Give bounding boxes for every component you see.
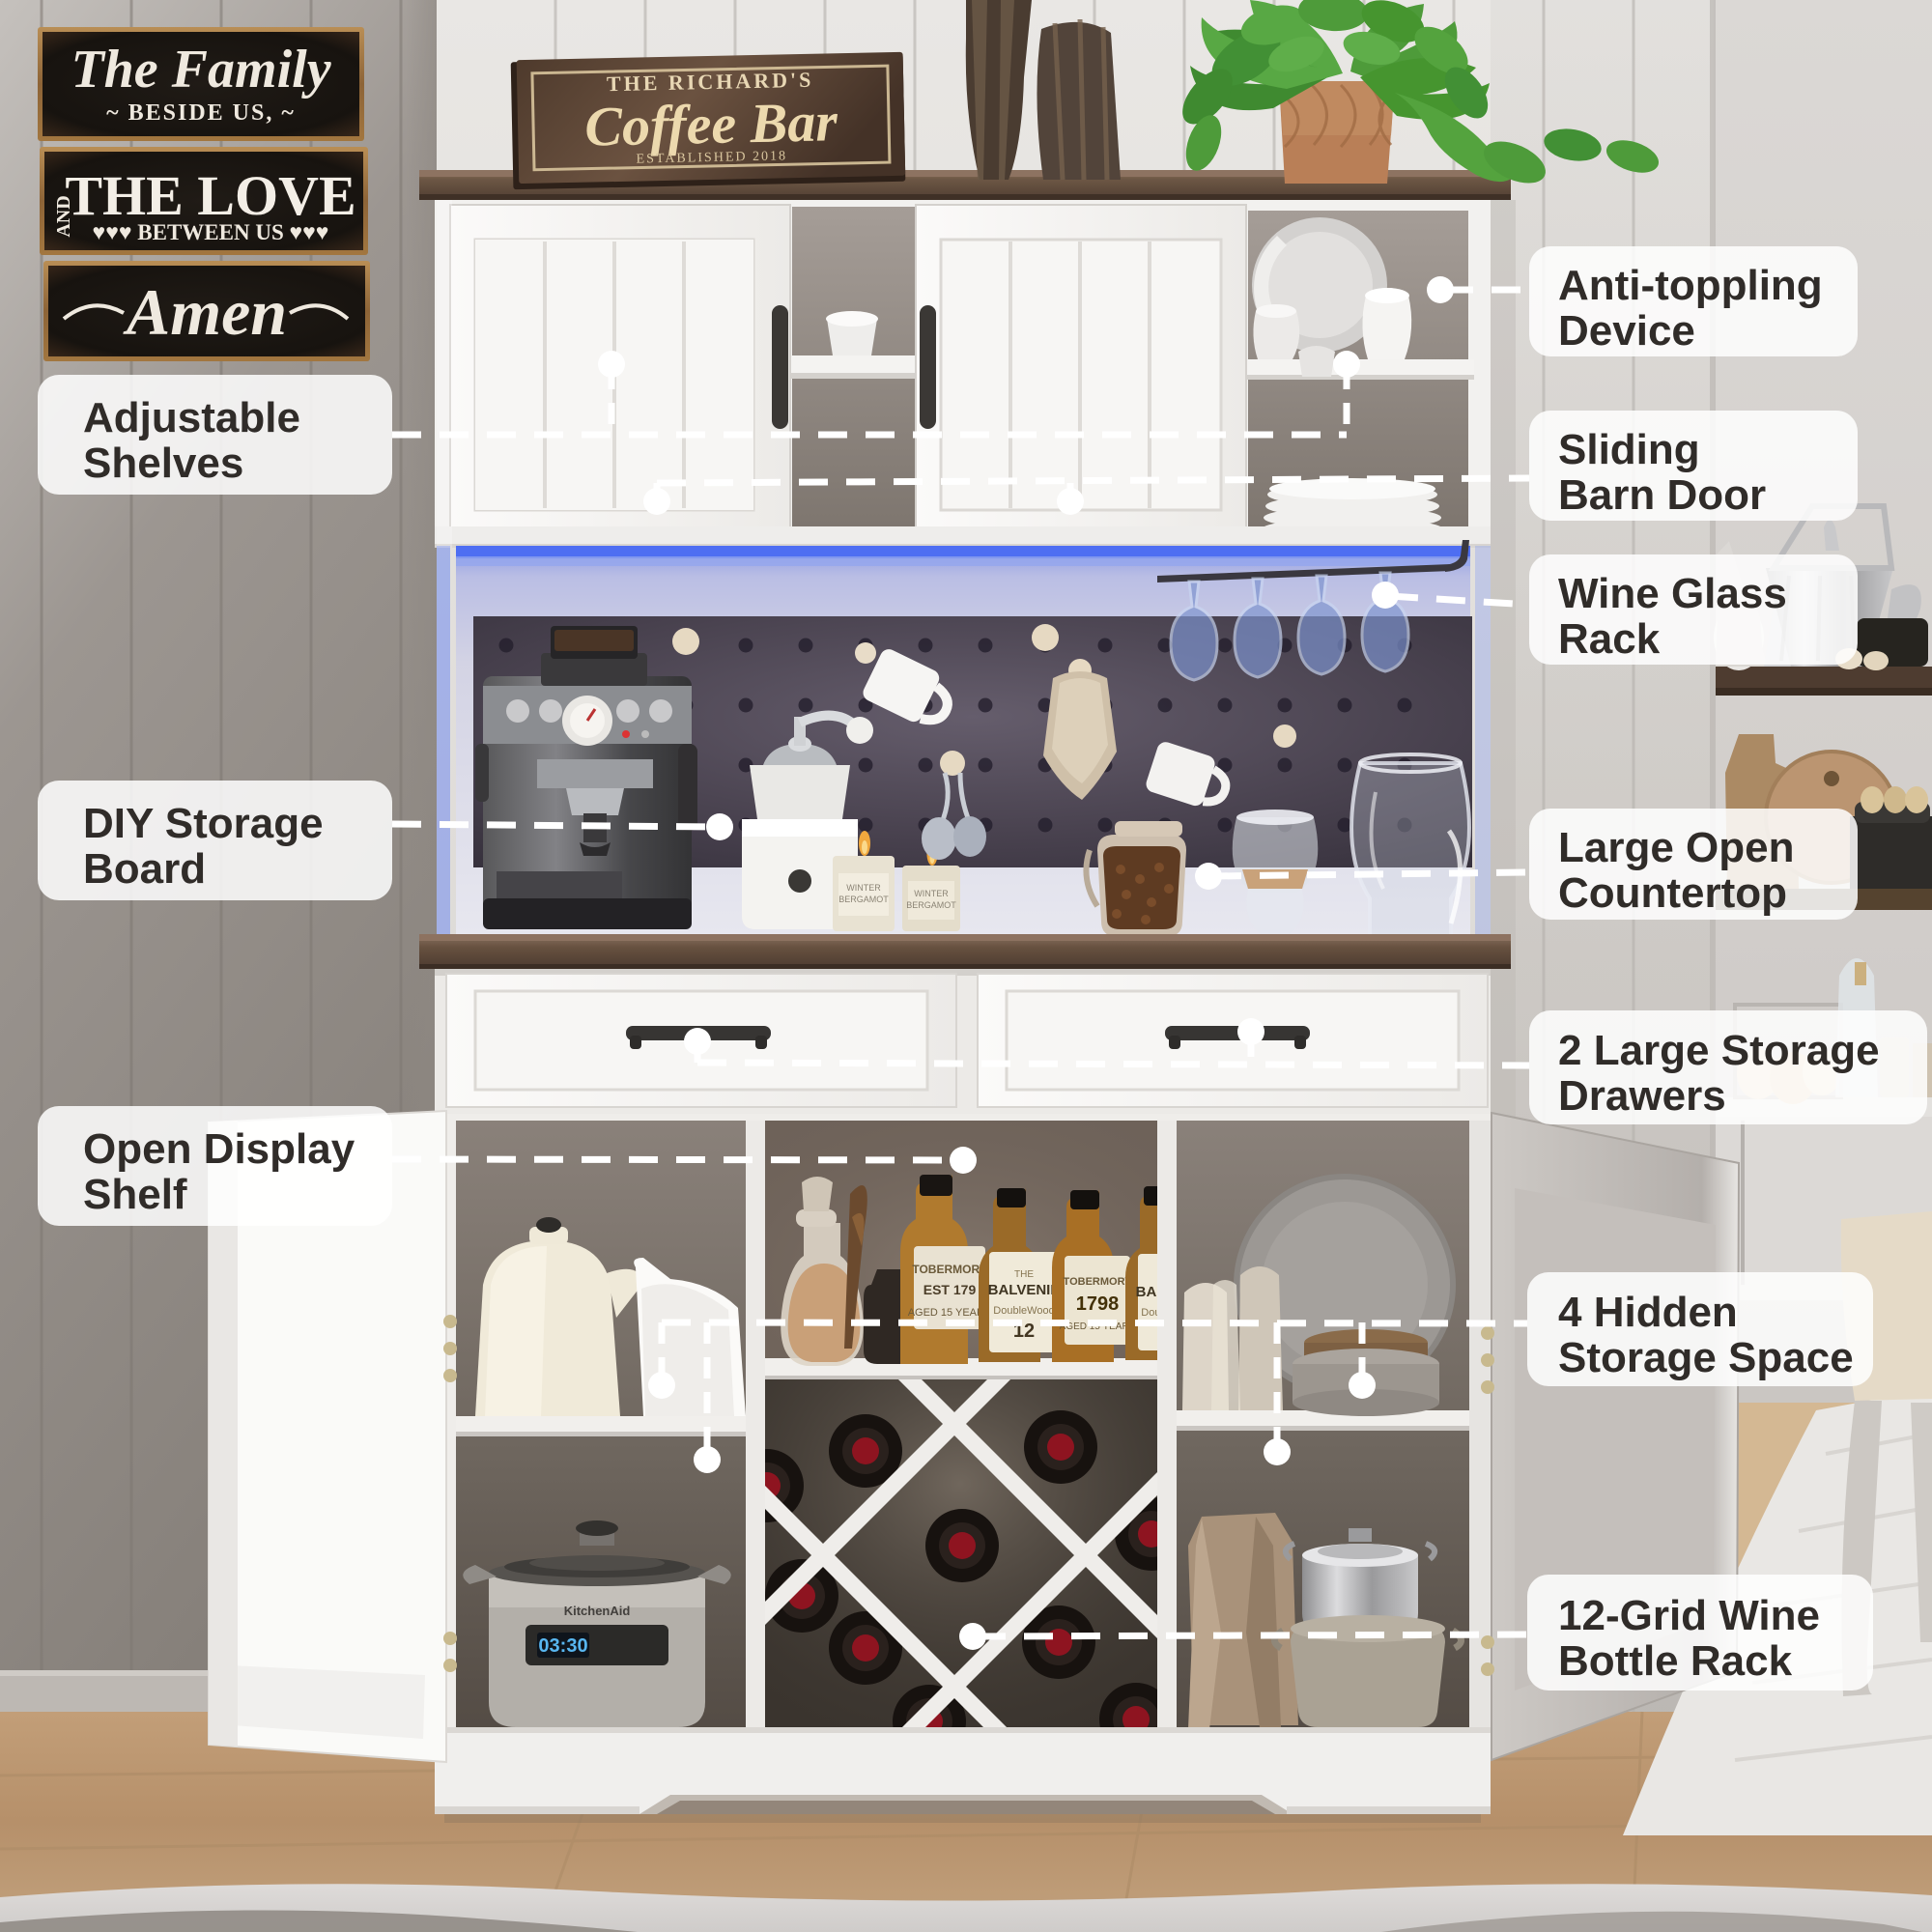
svg-text:Sliding: Sliding — [1558, 426, 1700, 473]
svg-text:Device: Device — [1558, 307, 1695, 355]
svg-text:Storage Space: Storage Space — [1558, 1334, 1854, 1381]
svg-text:Board: Board — [83, 845, 206, 893]
svg-text:Adjustable: Adjustable — [83, 394, 300, 441]
svg-text:12-Grid Wine: 12-Grid Wine — [1558, 1592, 1820, 1639]
svg-text:EST 179: EST 179 — [923, 1282, 977, 1297]
svg-text:TOBERMORY: TOBERMORY — [912, 1263, 986, 1276]
svg-text:Amen: Amen — [123, 275, 287, 349]
svg-text:The Family: The Family — [71, 40, 331, 99]
svg-text:Coffee Bar: Coffee Bar — [584, 90, 838, 157]
svg-text:TOBERMORY: TOBERMORY — [1064, 1276, 1133, 1288]
svg-text:Rack: Rack — [1558, 615, 1661, 663]
svg-text:1798: 1798 — [1076, 1293, 1120, 1315]
svg-text:WINTER: WINTER — [846, 883, 881, 893]
svg-text:♥♥♥ BETWEEN US ♥♥♥: ♥♥♥ BETWEEN US ♥♥♥ — [93, 220, 329, 244]
svg-text:~ BESIDE US, ~: ~ BESIDE US, ~ — [106, 100, 296, 126]
svg-text:WINTER: WINTER — [914, 889, 949, 898]
svg-text:BERGAMOT: BERGAMOT — [838, 895, 889, 904]
svg-text:Drawers: Drawers — [1558, 1072, 1726, 1120]
svg-text:Shelf: Shelf — [83, 1171, 187, 1218]
svg-text:BALVENIE: BALVENIE — [988, 1282, 1061, 1298]
svg-text:4 Hidden: 4 Hidden — [1558, 1289, 1738, 1336]
svg-text:Open Display: Open Display — [83, 1125, 355, 1173]
svg-text:DoubleWood: DoubleWood — [993, 1305, 1054, 1317]
svg-text:Bottle Rack: Bottle Rack — [1558, 1637, 1793, 1685]
svg-text:KitchenAid: KitchenAid — [564, 1604, 631, 1618]
svg-text:THE: THE — [1014, 1269, 1034, 1280]
svg-text:DIY Storage: DIY Storage — [83, 800, 324, 847]
svg-text:BERGAMOT: BERGAMOT — [906, 900, 956, 910]
svg-text:2 Large Storage: 2 Large Storage — [1558, 1027, 1880, 1074]
svg-text:Anti-toppling: Anti-toppling — [1558, 262, 1823, 309]
svg-text:Barn Door: Barn Door — [1558, 471, 1766, 519]
svg-text:Wine Glass: Wine Glass — [1558, 570, 1787, 617]
svg-text:Countertop: Countertop — [1558, 869, 1787, 917]
svg-text:03:30: 03:30 — [538, 1635, 587, 1657]
svg-text:THE LOVE: THE LOVE — [65, 164, 355, 227]
svg-text:Large Open: Large Open — [1558, 824, 1795, 871]
svg-text:Shelves: Shelves — [83, 440, 243, 487]
